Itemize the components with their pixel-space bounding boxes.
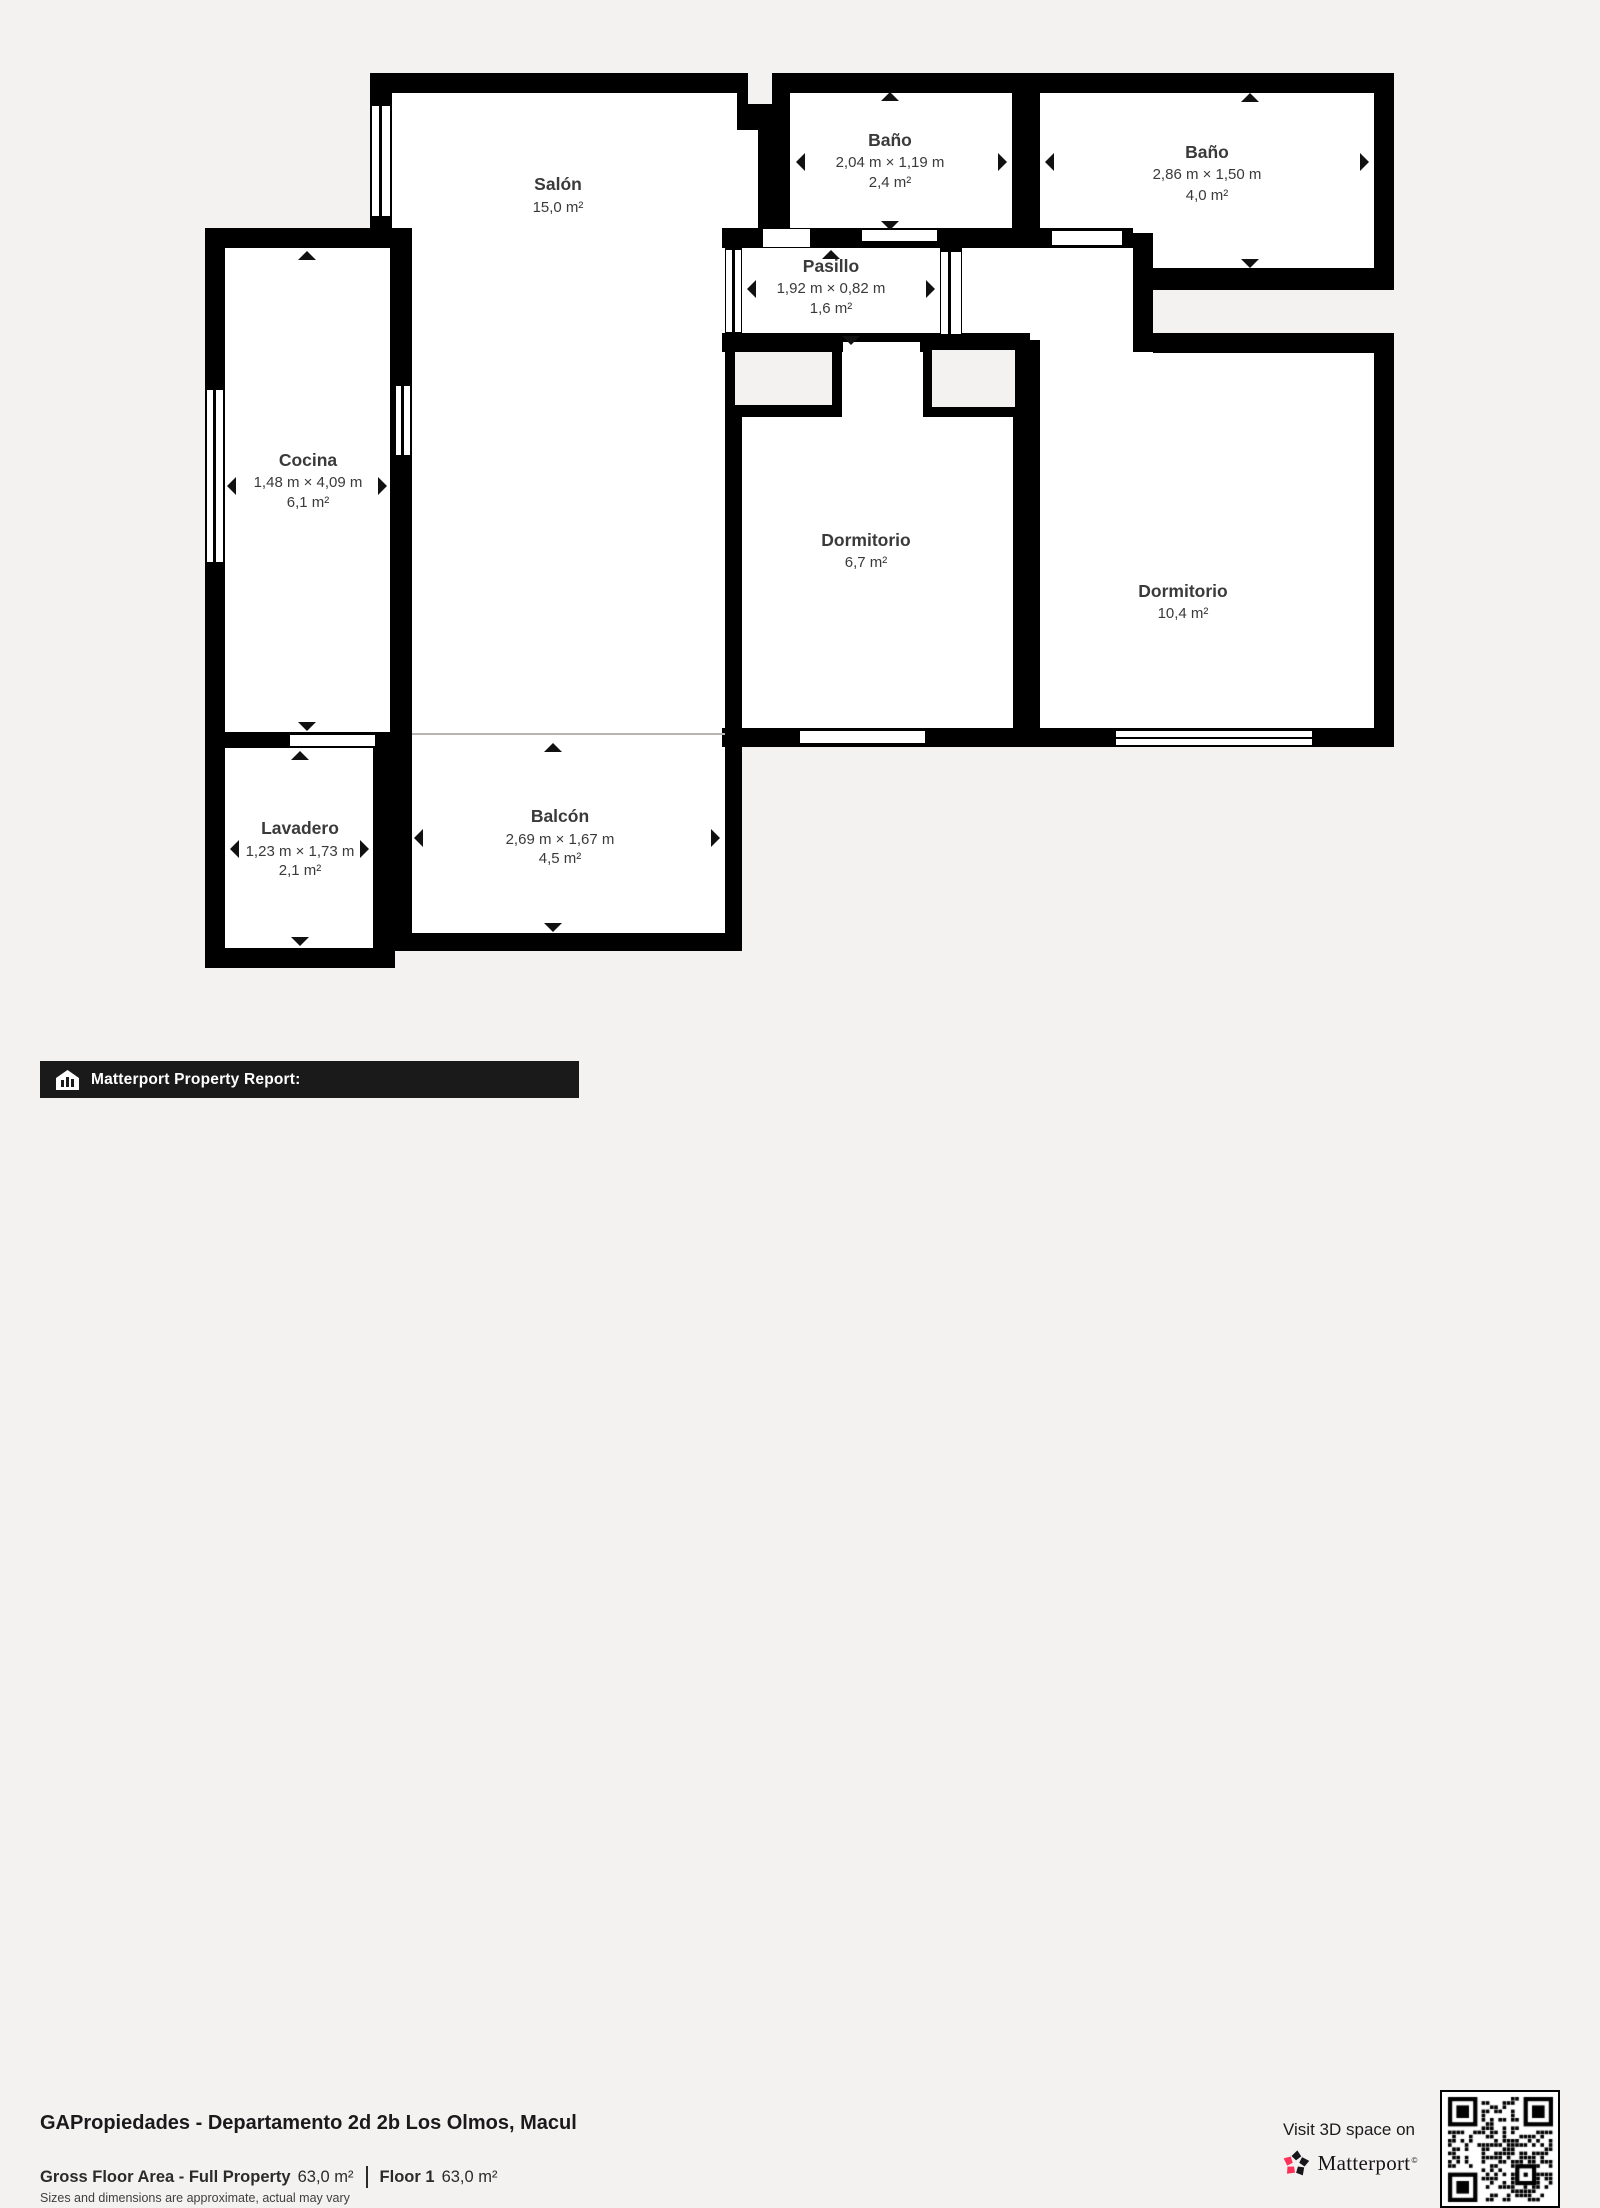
- room-label-bano-large: Baño: [1185, 142, 1229, 162]
- closet-interior: [932, 350, 1015, 407]
- matterport-wordmark: Matterport: [1318, 2151, 1411, 2175]
- wall-segment: [370, 73, 1394, 93]
- room-label-dormitorio-small: Dormitorio: [821, 530, 910, 550]
- divider: [366, 2166, 368, 2188]
- disclaimer-text: Sizes and dimensions are approximate, ac…: [40, 2191, 350, 2205]
- closet-interior: [735, 352, 832, 405]
- floorplan: Salón 15,0 m² Baño 2,04 m × 1,19 m 2,4 m…: [0, 0, 1600, 1010]
- floor-value: 63,0 m²: [442, 2168, 498, 2187]
- room-area-dormitorio-large: 10,4 m²: [1158, 605, 1209, 622]
- report-bar: Matterport Property Report:: [40, 1061, 579, 1098]
- report-footer: Matterport Property Report: GAPropiedade…: [0, 1030, 1600, 1200]
- visit-3d-block: Visit 3D space on Matterport©: [1256, 2120, 1442, 2178]
- wall-segment: [205, 228, 412, 248]
- balcony-boundary-line: [412, 733, 725, 735]
- door-opening: [290, 735, 375, 746]
- room-label-lavadero: Lavadero: [261, 818, 339, 838]
- property-title: GAPropiedades - Departamento 2d 2b Los O…: [40, 2112, 577, 2135]
- door-opening: [763, 229, 810, 247]
- logo-petal: [1291, 2150, 1301, 2160]
- wall-segment: [1374, 73, 1394, 290]
- room-area-cocina: 6,1 m²: [287, 494, 330, 511]
- room-label-balcon: Balcón: [531, 806, 589, 826]
- window-pane-line: [401, 386, 404, 455]
- report-bar-label: Matterport Property Report:: [91, 1071, 301, 1089]
- house-chart-icon: [56, 1070, 79, 1090]
- room-area-salon: 15,0 m²: [533, 199, 584, 216]
- room-dims-bano-small: 2,04 m × 1,19 m: [836, 154, 945, 171]
- room-dims-pasillo: 1,92 m × 0,82 m: [777, 280, 886, 297]
- room-area-balcon: 4,5 m²: [539, 850, 582, 867]
- wall-segment: [205, 948, 395, 968]
- room-dims-lavadero: 1,23 m × 1,73 m: [246, 843, 355, 860]
- visit-3d-text: Visit 3D space on: [1256, 2120, 1442, 2140]
- wall-segment: [373, 732, 412, 951]
- exterior-notch: [748, 73, 772, 104]
- window-pane-line: [379, 106, 382, 216]
- room-area-pasillo: 1,6 m²: [810, 300, 853, 317]
- door-opening: [862, 230, 937, 241]
- window-pane-line: [732, 250, 735, 332]
- door-opening: [1052, 231, 1122, 245]
- room-label-bano-small: Baño: [868, 130, 912, 150]
- wall-segment: [1153, 333, 1394, 353]
- wall-segment: [1143, 268, 1394, 290]
- exterior-notch: [1153, 290, 1394, 333]
- room-area-bano-small: 2,4 m²: [869, 174, 912, 191]
- room-area-lavadero: 2,1 m²: [279, 862, 322, 879]
- door-opening: [843, 342, 920, 352]
- wall-segment: [758, 93, 790, 243]
- gfa-label: Gross Floor Area - Full Property: [40, 2168, 291, 2187]
- wall-segment: [1374, 333, 1394, 747]
- qr-code: [1440, 2090, 1560, 2208]
- room-label-dormitorio-large: Dormitorio: [1138, 581, 1227, 601]
- logo-petal: [1296, 2166, 1304, 2175]
- wall-segment: [1133, 233, 1153, 352]
- room-label-pasillo: Pasillo: [803, 256, 859, 276]
- window-pane-line: [1116, 737, 1312, 739]
- room-label-salon: Salón: [534, 174, 582, 194]
- room-area-bano-large: 4,0 m²: [1186, 187, 1229, 204]
- floor-area-summary: Gross Floor Area - Full Property 63,0 m²…: [40, 2166, 498, 2188]
- room-dims-bano-large: 2,86 m × 1,50 m: [1153, 166, 1262, 183]
- window-pane-line: [213, 390, 216, 562]
- wall-segment: [1012, 73, 1040, 243]
- room-label-cocina: Cocina: [279, 450, 338, 470]
- logo-petal: [1287, 2166, 1295, 2173]
- trademark-symbol: ©: [1411, 2156, 1417, 2165]
- room-dims-balcon: 2,69 m × 1,67 m: [506, 831, 615, 848]
- wall-segment: [390, 933, 742, 951]
- logo-petal: [1283, 2157, 1292, 2166]
- window-pane-line: [948, 252, 951, 334]
- gfa-value: 63,0 m²: [298, 2168, 354, 2187]
- matterport-logo-icon: [1281, 2148, 1311, 2178]
- door-opening: [800, 731, 925, 743]
- matterport-floorplan-report: { "plan": { "rooms": { "salon": {"name":…: [0, 0, 1600, 1200]
- room-area-dormitorio-small: 6,7 m²: [845, 554, 888, 571]
- logo-petal: [1299, 2157, 1309, 2166]
- wall-segment: [205, 228, 225, 968]
- room-dims-cocina: 1,48 m × 4,09 m: [254, 474, 363, 491]
- floor-label: Floor 1: [380, 2168, 435, 2187]
